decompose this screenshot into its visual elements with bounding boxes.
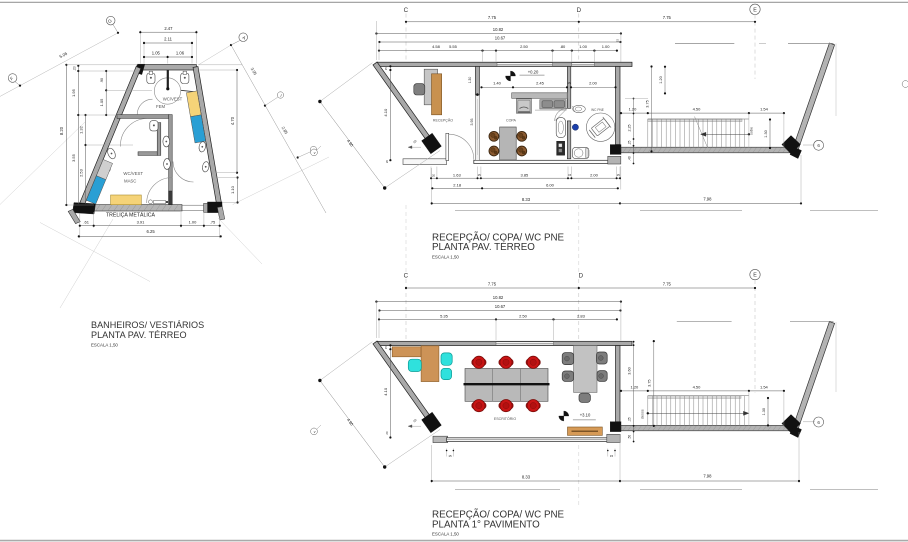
svg-text:1.40: 1.40 [493,81,502,86]
svg-text:4.58: 4.58 [432,44,441,49]
svg-text:ESCALA 1,50: ESCALA 1,50 [432,254,459,259]
svg-text:1.54: 1.54 [760,107,769,112]
svg-text:4.70: 4.70 [230,116,235,125]
svg-text:15: 15 [616,39,620,43]
svg-text:2.18: 2.18 [453,183,462,188]
svg-text:10.67: 10.67 [495,304,506,309]
svg-text:.50: .50 [627,435,631,440]
svg-text:7.75: 7.75 [488,281,497,286]
svg-text:D: D [579,272,584,279]
svg-text:1.00: 1.00 [579,44,588,49]
svg-text:3.60: 3.60 [627,367,631,374]
svg-text:8.33: 8.33 [522,474,531,479]
svg-text:1.54: 1.54 [760,384,769,389]
svg-text:2.53: 2.53 [79,168,84,177]
svg-text:15: 15 [448,454,452,458]
svg-text:ESCALA 1,50: ESCALA 1,50 [91,342,118,347]
svg-text:20: 20 [385,431,389,435]
svg-text:4.50: 4.50 [693,107,702,112]
svg-text:10.82: 10.82 [493,27,504,32]
svg-text:2.50: 2.50 [520,44,529,49]
svg-text:FEM: FEM [156,104,165,109]
svg-text:10.67: 10.67 [495,35,506,40]
svg-text:.75: .75 [210,219,216,224]
svg-text:6: 6 [817,143,820,148]
svg-text:PLANTA PAV. TÉRREO: PLANTA PAV. TÉRREO [432,242,535,253]
svg-text:desce: desce [640,409,644,419]
svg-text:1.32: 1.32 [79,125,84,134]
svg-text:ESCALA 1,50: ESCALA 1,50 [432,532,459,537]
svg-text:5.55: 5.55 [449,44,458,49]
svg-text:1.20: 1.20 [631,384,640,389]
svg-text:C: C [404,7,409,14]
svg-text:COPA: COPA [506,119,517,123]
svg-text:4.10: 4.10 [383,108,388,117]
svg-text:1.30: 1.30 [468,77,472,84]
svg-text:2.11: 2.11 [164,37,173,42]
svg-text:5.35: 5.35 [440,313,449,318]
svg-text:+0.20: +0.20 [528,69,539,74]
svg-text:2.83: 2.83 [577,313,586,318]
svg-text:1.63: 1.63 [453,172,462,177]
svg-text:7.75: 7.75 [663,281,672,286]
svg-text:4.10: 4.10 [383,387,388,396]
svg-text:E: E [753,273,757,279]
svg-text:2.50: 2.50 [519,313,528,318]
svg-text:ESCRITÓRIO: ESCRITÓRIO [494,416,517,421]
svg-text:TRELIÇA METÁLICA: TRELIÇA METÁLICA [106,212,156,219]
svg-text:15: 15 [384,67,388,71]
svg-text:7.98: 7.98 [703,196,712,201]
svg-text:3.91: 3.91 [137,219,146,224]
svg-text:1.30: 1.30 [762,408,766,415]
svg-text:1.20: 1.20 [629,107,638,112]
svg-text:7.98: 7.98 [703,473,712,478]
svg-text:15: 15 [567,81,571,85]
svg-text:1.00: 1.00 [189,219,198,224]
svg-text:1.00: 1.00 [602,44,611,49]
svg-text:C: C [404,272,409,279]
svg-text:2.00: 2.00 [589,81,598,86]
svg-text:6.25: 6.25 [147,229,156,234]
svg-text:2.47: 2.47 [164,26,173,31]
svg-text:7.75: 7.75 [488,15,497,20]
svg-text:.90: .90 [100,78,104,83]
svg-text:1.20: 1.20 [659,76,663,83]
svg-text:WC/VEST: WC/VEST [163,96,183,101]
svg-text:6.00: 6.00 [546,183,555,188]
svg-text:15: 15 [384,346,388,350]
svg-text:.25: .25 [627,140,631,145]
svg-text:1.05: 1.05 [152,51,161,56]
svg-text:6: 6 [817,420,820,425]
svg-text:.61: .61 [83,219,89,224]
svg-text:3.93: 3.93 [470,119,474,126]
svg-text:PLANTA 1° PAVIMENTO: PLANTA 1° PAVIMENTO [432,519,540,530]
svg-text:2.00: 2.00 [590,172,599,177]
svg-text:1.06: 1.06 [176,51,185,56]
svg-text:MASC: MASC [124,179,136,184]
svg-text:4.50: 4.50 [693,384,702,389]
svg-text:WC/VEST: WC/VEST [123,171,143,176]
svg-text:15: 15 [478,173,482,177]
svg-text:RECEPÇÃO: RECEPÇÃO [433,118,453,123]
svg-text:8.33: 8.33 [522,197,531,202]
svg-text:15: 15 [568,173,572,177]
svg-text:PLANTA PAV. TÉRREO: PLANTA PAV. TÉRREO [91,330,187,340]
svg-text:D: D [577,7,582,14]
svg-text:+3.10: +3.10 [580,412,591,417]
svg-text:sobe: sobe [749,127,753,135]
svg-text:1.05: 1.05 [99,98,104,107]
svg-text:E: E [753,7,757,13]
svg-text:10.82: 10.82 [493,295,504,300]
svg-text:3.85: 3.85 [521,172,530,177]
svg-text:20: 20 [385,160,389,164]
svg-text:.25: .25 [627,417,631,422]
svg-text:7.75: 7.75 [663,15,672,20]
svg-text:1.95: 1.95 [71,88,76,97]
svg-text:1.30: 1.30 [764,130,768,137]
svg-text:WC PNE: WC PNE [591,108,604,112]
svg-text:15: 15 [617,173,621,177]
svg-text:1.10: 1.10 [230,185,235,194]
svg-text:15: 15 [610,454,614,458]
svg-text:.40: .40 [627,156,631,161]
svg-text:2.45: 2.45 [536,81,545,86]
svg-text:20: 20 [432,173,436,177]
svg-text:3.75: 3.75 [648,380,652,387]
svg-text:2.25: 2.25 [627,125,631,132]
svg-text:BANHEIROS/ VESTIÁRIOS: BANHEIROS/ VESTIÁRIOS [91,320,204,330]
svg-text:8.20: 8.20 [59,126,64,135]
svg-text:3.75: 3.75 [645,100,649,107]
svg-text:3.55: 3.55 [71,153,76,162]
svg-text:.20: .20 [72,66,76,71]
svg-text:.80: .80 [560,44,566,49]
